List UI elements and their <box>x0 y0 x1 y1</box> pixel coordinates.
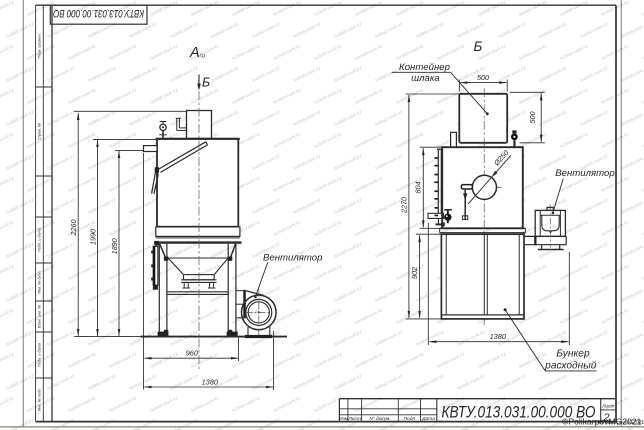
svg-text:tezbab.work.kz: tezbab.work.kz <box>272 131 302 149</box>
svg-text:tezbab.work.kz: tezbab.work.kz <box>5 21 35 39</box>
svg-text:tezbab.work.kz: tezbab.work.kz <box>415 109 445 127</box>
svg-text:tezbab.work.kz: tezbab.work.kz <box>190 263 220 281</box>
svg-text:Бункер: Бункер <box>556 349 590 360</box>
svg-text:tezbab.work.kz: tezbab.work.kz <box>149 43 179 61</box>
svg-text:tezbab.work.kz: tezbab.work.kz <box>46 241 76 259</box>
svg-text:tezbab.work.kz: tezbab.work.kz <box>272 307 302 325</box>
svg-text:804: 804 <box>414 182 423 194</box>
svg-text:tezbab.work.kz: tezbab.work.kz <box>272 0 302 17</box>
svg-text:Дата: Дата <box>421 416 435 422</box>
svg-text:tezbab.work.kz: tezbab.work.kz <box>46 153 76 171</box>
svg-text:tezbab.work.kz: tezbab.work.kz <box>518 43 548 61</box>
svg-text:tezbab.work.kz: tezbab.work.kz <box>108 87 138 105</box>
svg-text:tezbab.work.kz: tezbab.work.kz <box>354 307 384 325</box>
svg-text:tezbab.work.kz: tezbab.work.kz <box>620 197 644 215</box>
svg-text:tezbab.work.kz: tezbab.work.kz <box>0 219 15 237</box>
svg-text:tezbab.work.kz: tezbab.work.kz <box>538 109 568 127</box>
svg-text:tezbab.work.kz: tezbab.work.kz <box>5 153 35 171</box>
svg-text:tezbab.work.kz: tezbab.work.kz <box>333 329 363 347</box>
svg-text:tezbab.work.kz: tezbab.work.kz <box>538 285 568 303</box>
svg-text:tezbab.work.kz: tezbab.work.kz <box>169 65 199 83</box>
svg-text:Инв. № дубл.: Инв. № дубл. <box>38 270 42 293</box>
svg-text:tezbab.work.kz: tezbab.work.kz <box>67 307 97 325</box>
svg-text:tezbab.work.kz: tezbab.work.kz <box>87 65 117 83</box>
svg-text:tezbab.work.kz: tezbab.work.kz <box>5 373 35 391</box>
svg-text:tezbab.work.kz: tezbab.work.kz <box>292 109 322 127</box>
svg-text:tezbab.work.kz: tezbab.work.kz <box>108 395 138 413</box>
svg-text:tezbab.work.kz: tezbab.work.kz <box>374 329 404 347</box>
svg-text:Справ. №: Справ. № <box>38 123 42 140</box>
svg-text:tezbab.work.kz: tezbab.work.kz <box>108 219 138 237</box>
svg-text:tezbab.work.kz: tezbab.work.kz <box>5 241 35 259</box>
svg-text:tezbab.work.kz: tezbab.work.kz <box>292 373 322 391</box>
svg-text:tezbab.work.kz: tezbab.work.kz <box>354 0 384 17</box>
svg-text:tezbab.work.kz: tezbab.work.kz <box>292 153 322 171</box>
svg-text:tezbab.work.kz: tezbab.work.kz <box>456 373 486 391</box>
svg-text:tezbab.work.kz: tezbab.work.kz <box>374 373 404 391</box>
svg-text:tezbab.work.kz: tezbab.work.kz <box>0 131 15 149</box>
svg-text:tezbab.work.kz: tezbab.work.kz <box>374 153 404 171</box>
svg-text:tezbab.work.kz: tezbab.work.kz <box>0 43 15 61</box>
svg-text:tezbab.work.kz: tezbab.work.kz <box>333 109 363 127</box>
svg-text:tezbab.work.kz: tezbab.work.kz <box>87 153 117 171</box>
svg-text:tezbab.work.kz: tezbab.work.kz <box>67 263 97 281</box>
svg-text:tezbab.work.kz: tezbab.work.kz <box>559 43 589 61</box>
svg-text:tezbab.work.kz: tezbab.work.kz <box>272 219 302 237</box>
svg-text:tezbab.work.kz: tezbab.work.kz <box>313 263 343 281</box>
svg-text:tezbab.work.kz: tezbab.work.kz <box>5 417 35 430</box>
svg-text:tezbab.work.kz: tezbab.work.kz <box>333 285 363 303</box>
svg-text:tezbab.work.kz: tezbab.work.kz <box>5 197 35 215</box>
svg-text:tezbab.work.kz: tezbab.work.kz <box>149 87 179 105</box>
svg-text:tezbab.work.kz: tezbab.work.kz <box>313 0 343 17</box>
svg-text:tezbab.work.kz: tezbab.work.kz <box>497 21 527 39</box>
svg-text:tezbab.work.kz: tezbab.work.kz <box>456 21 486 39</box>
svg-text:Перв. примен.: Перв. примен. <box>38 33 42 58</box>
svg-text:tezbab.work.kz: tezbab.work.kz <box>374 21 404 39</box>
svg-text:tezbab.work.kz: tezbab.work.kz <box>497 373 527 391</box>
svg-text:tezbab.work.kz: tezbab.work.kz <box>128 65 158 83</box>
svg-text:tezbab.work.kz: tezbab.work.kz <box>538 373 568 391</box>
svg-text:N° докум.: N° докум. <box>369 416 390 422</box>
svg-text:tezbab.work.kz: tezbab.work.kz <box>251 153 281 171</box>
svg-text:tezbab.work.kz: tezbab.work.kz <box>436 351 466 369</box>
svg-text:tezbab.work.kz: tezbab.work.kz <box>292 65 322 83</box>
svg-text:Лист: Лист <box>601 403 614 409</box>
svg-text:tezbab.work.kz: tezbab.work.kz <box>190 395 220 413</box>
svg-text:tezbab.work.kz: tezbab.work.kz <box>292 285 322 303</box>
svg-text:tezbab.work.kz: tezbab.work.kz <box>579 373 609 391</box>
svg-text:tezbab.work.kz: tezbab.work.kz <box>559 307 589 325</box>
svg-text:tezbab.work.kz: tezbab.work.kz <box>374 109 404 127</box>
svg-text:tezbab.work.kz: tezbab.work.kz <box>87 417 117 430</box>
svg-text:tezbab.work.kz: tezbab.work.kz <box>518 131 548 149</box>
svg-text:tezbab.work.kz: tezbab.work.kz <box>518 87 548 105</box>
svg-text:tezbab.work.kz: tezbab.work.kz <box>579 285 609 303</box>
svg-text:tezbab.work.kz: tezbab.work.kz <box>354 131 384 149</box>
svg-text:tezbab.work.kz: tezbab.work.kz <box>169 417 199 430</box>
svg-text:tezbab.work.kz: tezbab.work.kz <box>231 43 261 61</box>
svg-text:tezbab.work.kz: tezbab.work.kz <box>333 197 363 215</box>
svg-text:tezbab.work.kz: tezbab.work.kz <box>251 109 281 127</box>
svg-text:tezbab.work.kz: tezbab.work.kz <box>436 43 466 61</box>
svg-text:tezbab.work.kz: tezbab.work.kz <box>149 307 179 325</box>
svg-text:tezbab.work.kz: tezbab.work.kz <box>415 373 445 391</box>
svg-text:tezbab.work.kz: tezbab.work.kz <box>272 43 302 61</box>
svg-text:tezbab.work.kz: tezbab.work.kz <box>620 241 644 259</box>
svg-text:tezbab.work.kz: tezbab.work.kz <box>251 21 281 39</box>
svg-text:tezbab.work.kz: tezbab.work.kz <box>395 0 425 17</box>
svg-text:tezbab.work.kz: tezbab.work.kz <box>333 65 363 83</box>
svg-text:tezbab.work.kz: tezbab.work.kz <box>497 65 527 83</box>
svg-text:tezbab.work.kz: tezbab.work.kz <box>395 131 425 149</box>
svg-text:tezbab.work.kz: tezbab.work.kz <box>67 175 97 193</box>
svg-text:tezbab.work.kz: tezbab.work.kz <box>354 395 384 413</box>
svg-text:tezbab.work.kz: tezbab.work.kz <box>46 65 76 83</box>
svg-text:tezbab.work.kz: tezbab.work.kz <box>620 153 644 171</box>
svg-text:tezbab.work.kz: tezbab.work.kz <box>436 0 466 17</box>
svg-text:tezbab.work.kz: tezbab.work.kz <box>292 329 322 347</box>
svg-text:tezbab.work.kz: tezbab.work.kz <box>456 329 486 347</box>
svg-text:tezbab.work.kz: tezbab.work.kz <box>354 219 384 237</box>
svg-text:Подп. и дата: Подп. и дата <box>38 228 42 252</box>
svg-text:tezbab.work.kz: tezbab.work.kz <box>272 87 302 105</box>
svg-text:tezbab.work.kz: tezbab.work.kz <box>538 21 568 39</box>
svg-text:tezbab.work.kz: tezbab.work.kz <box>292 417 322 430</box>
svg-text:Лист: Лист <box>348 416 361 422</box>
svg-text:tezbab.work.kz: tezbab.work.kz <box>579 241 609 259</box>
svg-text:tezbab.work.kz: tezbab.work.kz <box>87 197 117 215</box>
svg-text:1990: 1990 <box>88 229 97 245</box>
svg-text:tezbab.work.kz: tezbab.work.kz <box>313 87 343 105</box>
svg-text:©PolikarpovMG2021: ©PolikarpovMG2021 <box>598 419 644 426</box>
svg-text:tezbab.work.kz: tezbab.work.kz <box>620 21 644 39</box>
svg-text:tezbab.work.kz: tezbab.work.kz <box>579 21 609 39</box>
svg-text:tezbab.work.kz: tezbab.work.kz <box>477 351 507 369</box>
svg-text:tezbab.work.kz: tezbab.work.kz <box>354 263 384 281</box>
svg-text:tezbab.work.kz: tezbab.work.kz <box>46 285 76 303</box>
svg-text:tezbab.work.kz: tezbab.work.kz <box>169 373 199 391</box>
svg-text:tezbab.work.kz: tezbab.work.kz <box>272 351 302 369</box>
svg-text:tezbab.work.kz: tezbab.work.kz <box>128 417 158 430</box>
svg-text:tezbab.work.kz: tezbab.work.kz <box>0 351 15 369</box>
svg-text:Б: Б <box>474 39 483 54</box>
svg-text:tezbab.work.kz: tezbab.work.kz <box>149 0 179 17</box>
svg-text:tezbab.work.kz: tezbab.work.kz <box>149 351 179 369</box>
svg-text:tezbab.work.kz: tezbab.work.kz <box>374 285 404 303</box>
svg-text:tezbab.work.kz: tezbab.work.kz <box>272 395 302 413</box>
svg-text:tezbab.work.kz: tezbab.work.kz <box>620 329 644 347</box>
svg-text:Вентилятор: Вентилятор <box>555 168 615 179</box>
svg-text:tezbab.work.kz: tezbab.work.kz <box>292 197 322 215</box>
svg-text:tezbab.work.kz: tezbab.work.kz <box>620 285 644 303</box>
svg-text:1380: 1380 <box>202 377 219 386</box>
svg-text:tezbab.work.kz: tezbab.work.kz <box>67 351 97 369</box>
svg-text:tezbab.work.kz: tezbab.work.kz <box>46 197 76 215</box>
svg-text:tezbab.work.kz: tezbab.work.kz <box>620 65 644 83</box>
svg-text:tezbab.work.kz: tezbab.work.kz <box>313 351 343 369</box>
svg-text:Вентилятор: Вентилятор <box>263 252 323 263</box>
svg-text:tezbab.work.kz: tezbab.work.kz <box>231 0 261 17</box>
svg-text:tezbab.work.kz: tezbab.work.kz <box>0 263 15 281</box>
svg-text:1380: 1380 <box>490 332 507 341</box>
svg-text:tezbab.work.kz: tezbab.work.kz <box>67 87 97 105</box>
svg-text:tezbab.work.kz: tezbab.work.kz <box>251 373 281 391</box>
svg-text:tezbab.work.kz: tezbab.work.kz <box>395 351 425 369</box>
svg-text:tezbab.work.kz: tezbab.work.kz <box>620 373 644 391</box>
svg-text:tezbab.work.kz: tezbab.work.kz <box>108 131 138 149</box>
svg-text:tezbab.work.kz: tezbab.work.kz <box>333 373 363 391</box>
svg-text:tezbab.work.kz: tezbab.work.kz <box>579 197 609 215</box>
svg-text:tezbab.work.kz: tezbab.work.kz <box>559 0 589 17</box>
svg-text:tezbab.work.kz: tezbab.work.kz <box>251 197 281 215</box>
svg-text:(1): (1) <box>200 53 206 58</box>
svg-text:tezbab.work.kz: tezbab.work.kz <box>333 21 363 39</box>
svg-text:tezbab.work.kz: tezbab.work.kz <box>518 0 548 17</box>
svg-text:Изм: Изм <box>339 416 349 422</box>
svg-text:tezbab.work.kz: tezbab.work.kz <box>415 329 445 347</box>
svg-text:1890: 1890 <box>110 238 119 254</box>
svg-text:tezbab.work.kz: tezbab.work.kz <box>210 65 240 83</box>
svg-text:tezbab.work.kz: tezbab.work.kz <box>559 87 589 105</box>
svg-text:tezbab.work.kz: tezbab.work.kz <box>272 263 302 281</box>
svg-text:tezbab.work.kz: tezbab.work.kz <box>67 395 97 413</box>
svg-text:960: 960 <box>186 349 199 358</box>
svg-text:tezbab.work.kz: tezbab.work.kz <box>0 307 15 325</box>
svg-text:tezbab.work.kz: tezbab.work.kz <box>231 395 261 413</box>
svg-text:tezbab.work.kz: tezbab.work.kz <box>87 373 117 391</box>
svg-text:Подп: Подп <box>404 416 416 422</box>
svg-text:tezbab.work.kz: tezbab.work.kz <box>354 175 384 193</box>
svg-text:А: А <box>189 45 200 61</box>
svg-text:tezbab.work.kz: tezbab.work.kz <box>415 197 445 215</box>
svg-text:tezbab.work.kz: tezbab.work.kz <box>46 417 76 430</box>
svg-text:tezbab.work.kz: tezbab.work.kz <box>395 307 425 325</box>
svg-text:tezbab.work.kz: tezbab.work.kz <box>477 0 507 17</box>
svg-text:tezbab.work.kz: tezbab.work.kz <box>0 0 15 17</box>
svg-text:tezbab.work.kz: tezbab.work.kz <box>108 351 138 369</box>
svg-text:tezbab.work.kz: tezbab.work.kz <box>210 417 240 430</box>
svg-text:tezbab.work.kz: tezbab.work.kz <box>169 329 199 347</box>
svg-text:tezbab.work.kz: tezbab.work.kz <box>87 329 117 347</box>
svg-text:tezbab.work.kz: tezbab.work.kz <box>518 351 548 369</box>
svg-text:шлака: шлака <box>411 73 440 84</box>
svg-text:tezbab.work.kz: tezbab.work.kz <box>5 109 35 127</box>
svg-text:tezbab.work.kz: tezbab.work.kz <box>149 395 179 413</box>
svg-text:tezbab.work.kz: tezbab.work.kz <box>313 307 343 325</box>
svg-text:tezbab.work.kz: tezbab.work.kz <box>374 241 404 259</box>
svg-text:tezbab.work.kz: tezbab.work.kz <box>313 175 343 193</box>
svg-text:tezbab.work.kz: tezbab.work.kz <box>395 43 425 61</box>
svg-text:tezbab.work.kz: tezbab.work.kz <box>169 21 199 39</box>
svg-text:tezbab.work.kz: tezbab.work.kz <box>395 87 425 105</box>
svg-text:Б: Б <box>202 76 210 90</box>
svg-text:Подп. и дата: Подп. и дата <box>38 343 42 367</box>
svg-text:2260: 2260 <box>69 220 78 237</box>
svg-text:tezbab.work.kz: tezbab.work.kz <box>108 43 138 61</box>
svg-text:tezbab.work.kz: tezbab.work.kz <box>579 109 609 127</box>
svg-text:tezbab.work.kz: tezbab.work.kz <box>313 131 343 149</box>
svg-text:tezbab.work.kz: tezbab.work.kz <box>354 43 384 61</box>
svg-text:tezbab.work.kz: tezbab.work.kz <box>559 131 589 149</box>
svg-text:tezbab.work.kz: tezbab.work.kz <box>108 307 138 325</box>
svg-text:tezbab.work.kz: tezbab.work.kz <box>313 43 343 61</box>
svg-text:tezbab.work.kz: tezbab.work.kz <box>313 395 343 413</box>
svg-text:tezbab.work.kz: tezbab.work.kz <box>46 109 76 127</box>
svg-text:tezbab.work.kz: tezbab.work.kz <box>5 285 35 303</box>
svg-text:tezbab.work.kz: tezbab.work.kz <box>579 65 609 83</box>
svg-text:tezbab.work.kz: tezbab.work.kz <box>333 153 363 171</box>
svg-text:500: 500 <box>528 112 537 124</box>
svg-text:tezbab.work.kz: tezbab.work.kz <box>67 43 97 61</box>
svg-text:tezbab.work.kz: tezbab.work.kz <box>46 373 76 391</box>
svg-text:tezbab.work.kz: tezbab.work.kz <box>67 131 97 149</box>
svg-text:tezbab.work.kz: tezbab.work.kz <box>0 395 15 413</box>
svg-text:tezbab.work.kz: tezbab.work.kz <box>292 21 322 39</box>
svg-text:tezbab.work.kz: tezbab.work.kz <box>313 219 343 237</box>
svg-text:tezbab.work.kz: tezbab.work.kz <box>231 87 261 105</box>
svg-text:tezbab.work.kz: tezbab.work.kz <box>251 417 281 430</box>
svg-text:tezbab.work.kz: tezbab.work.kz <box>620 109 644 127</box>
svg-text:tezbab.work.kz: tezbab.work.kz <box>210 21 240 39</box>
svg-text:tezbab.work.kz: tezbab.work.kz <box>251 65 281 83</box>
svg-text:tezbab.work.kz: tezbab.work.kz <box>190 87 220 105</box>
svg-text:tezbab.work.kz: tezbab.work.kz <box>108 263 138 281</box>
svg-text:Инв. № подл.: Инв. № подл. <box>38 388 42 412</box>
svg-text:tezbab.work.kz: tezbab.work.kz <box>5 65 35 83</box>
svg-text:tezbab.work.kz: tezbab.work.kz <box>538 65 568 83</box>
svg-text:500: 500 <box>477 73 489 82</box>
svg-text:tezbab.work.kz: tezbab.work.kz <box>415 21 445 39</box>
svg-text:расходный: расходный <box>544 360 597 371</box>
svg-text:tezbab.work.kz: tezbab.work.kz <box>415 153 445 171</box>
svg-text:tezbab.work.kz: tezbab.work.kz <box>559 263 589 281</box>
svg-text:tezbab.work.kz: tezbab.work.kz <box>538 329 568 347</box>
svg-text:Контейнер: Контейнер <box>399 62 451 73</box>
svg-text:2270: 2270 <box>399 197 408 214</box>
svg-text:tezbab.work.kz: tezbab.work.kz <box>272 175 302 193</box>
svg-text:tezbab.work.kz: tezbab.work.kz <box>333 241 363 259</box>
svg-text:tezbab.work.kz: tezbab.work.kz <box>354 87 384 105</box>
svg-text:tezbab.work.kz: tezbab.work.kz <box>231 351 261 369</box>
svg-text:tezbab.work.kz: tezbab.work.kz <box>5 329 35 347</box>
svg-text:902: 902 <box>410 267 419 279</box>
svg-text:tezbab.work.kz: tezbab.work.kz <box>0 87 15 105</box>
svg-text:tezbab.work.kz: tezbab.work.kz <box>190 307 220 325</box>
svg-text:КВТУ.013.031.00.000 ВО: КВТУ.013.031.00.000 ВО <box>53 7 144 19</box>
svg-text:Взам. инв. №: Взам. инв. № <box>38 305 42 328</box>
svg-text:tezbab.work.kz: tezbab.work.kz <box>190 0 220 17</box>
svg-text:tezbab.work.kz: tezbab.work.kz <box>579 329 609 347</box>
svg-text:tezbab.work.kz: tezbab.work.kz <box>108 175 138 193</box>
svg-text:tezbab.work.kz: tezbab.work.kz <box>210 109 240 127</box>
svg-text:tezbab.work.kz: tezbab.work.kz <box>0 175 15 193</box>
svg-text:tezbab.work.kz: tezbab.work.kz <box>87 285 117 303</box>
svg-text:tezbab.work.kz: tezbab.work.kz <box>354 351 384 369</box>
